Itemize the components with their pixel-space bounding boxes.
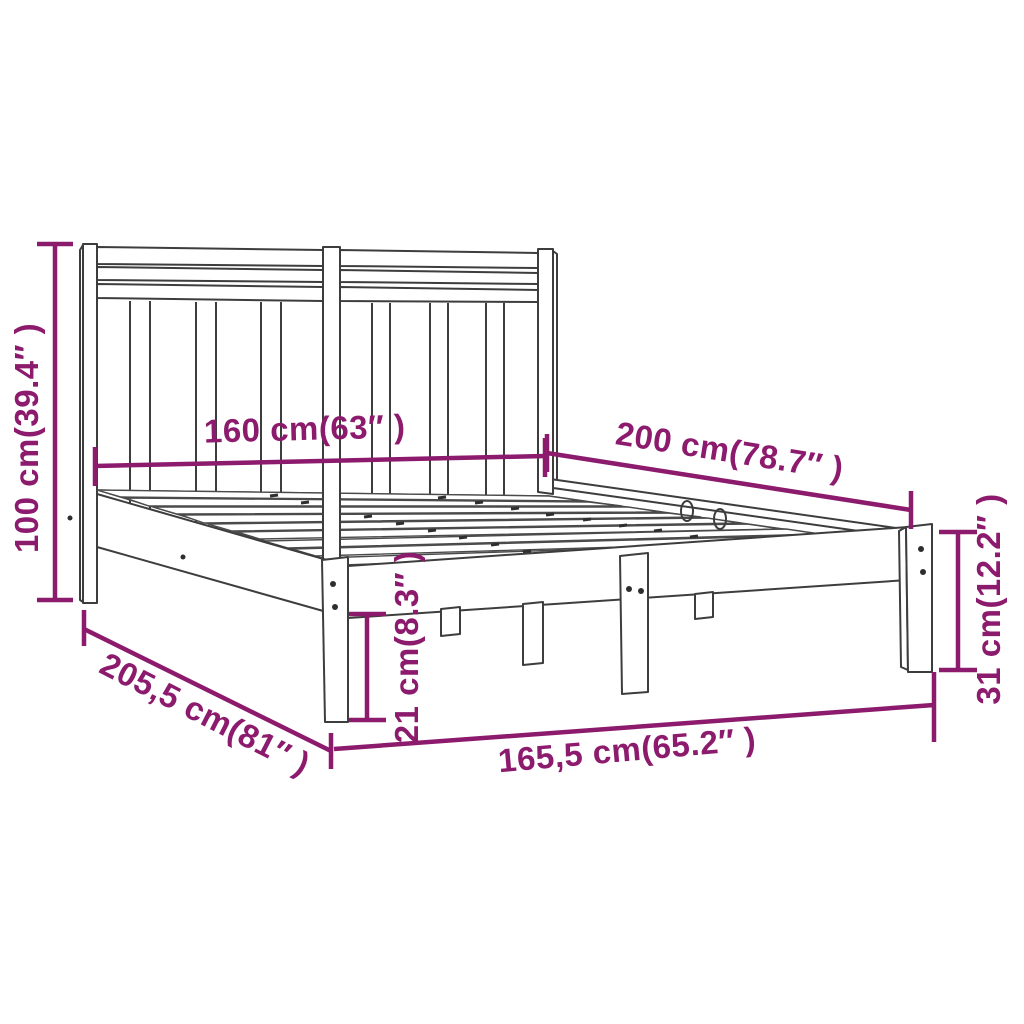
- dimension-headboard-height: 100 cm(39.4″ ): [8, 244, 73, 600]
- dimension-total-length: 205,5 cm(81″ ): [84, 610, 331, 782]
- near-corner-leg: [322, 557, 348, 722]
- screw-icon: [181, 555, 186, 560]
- rear-support-leg: [441, 607, 460, 636]
- far-support-leg: [695, 592, 713, 619]
- screw-icon: [920, 569, 926, 575]
- headboard-low-board-right: [340, 287, 538, 302]
- headboard-mid-board-left: [97, 267, 323, 282]
- headboard-top-board-left: [97, 247, 323, 266]
- screw-icon: [330, 581, 336, 587]
- dimension-label-total-length: 205,5 cm(81″ ): [94, 645, 316, 782]
- dimension-bed-width: 160 cm(63″ ): [95, 407, 545, 486]
- screw-icon: [638, 588, 644, 594]
- headboard-left-post: [83, 244, 97, 603]
- far-corner-leg: [906, 524, 932, 672]
- headboard-slat: [130, 301, 150, 512]
- diagram-canvas: 100 cm(39.4″ ) 160 cm(63″ ) 200 cm(78.7″…: [0, 0, 1024, 1024]
- screw-icon: [626, 586, 632, 592]
- headboard-mid-board-right: [340, 270, 538, 284]
- screw-icon: [918, 546, 924, 552]
- dimension-label-underbed-clearance: 21 cm(8.3″ ): [388, 551, 425, 743]
- headboard-top-board-right: [340, 250, 538, 268]
- dimension-side-rail-height: 31 cm(12.2″ ): [939, 493, 1007, 704]
- screw-icon: [332, 604, 338, 610]
- headboard-slat: [372, 303, 390, 500]
- headboard-center-post: [323, 247, 340, 563]
- screw-icon: [68, 516, 73, 521]
- headboard-low-board-left: [97, 284, 323, 301]
- dimension-label-bed-width: 160 cm(63″ ): [203, 407, 405, 449]
- front-mid-leg: [620, 553, 648, 694]
- dimension-label-headboard-height: 100 cm(39.4″ ): [8, 323, 45, 553]
- dimension-label-bed-length: 200 cm(78.7″ ): [613, 414, 846, 487]
- headboard-slat: [486, 303, 504, 500]
- dimension-label-side-rail-height: 31 cm(12.2″ ): [970, 493, 1007, 704]
- bed-frame-dimension-diagram: 100 cm(39.4″ ) 160 cm(63″ ) 200 cm(78.7″…: [0, 0, 1024, 1024]
- headboard-slat: [430, 303, 448, 500]
- center-support-leg: [523, 602, 543, 665]
